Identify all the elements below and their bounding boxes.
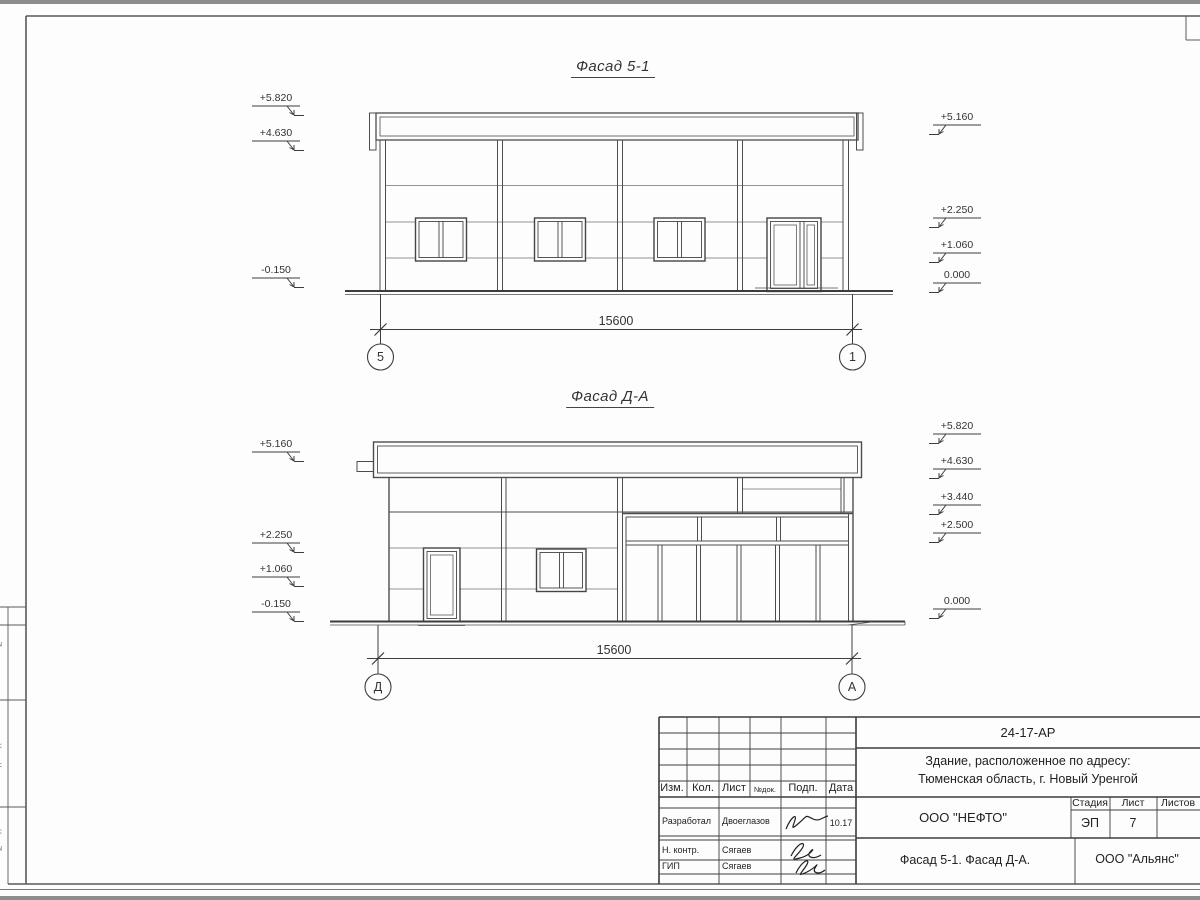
sheet-number: 7: [1130, 816, 1137, 830]
elevation-label: +5.820: [926, 420, 988, 432]
designer-org: ООО "НЕФТО": [919, 810, 1007, 825]
signature-path: [786, 816, 828, 874]
signer-date: 10.17: [830, 818, 853, 828]
dimension-label: 15600: [597, 643, 632, 657]
facade2-window: [537, 549, 587, 592]
rev-col-list: Лист: [722, 782, 746, 794]
elevation-label: +5.820: [245, 92, 307, 104]
facade2-storefront: [623, 514, 854, 622]
signer-name: Сягаев: [722, 845, 751, 855]
facade1-door: [767, 218, 821, 292]
elevation-label: 0.000: [926, 595, 988, 607]
elevation-label: +4.630: [926, 455, 988, 467]
stage-value: ЭП: [1081, 816, 1099, 830]
signer-name: Двоеглазов: [722, 816, 770, 826]
margin-label: Подп. и дата: [0, 700, 6, 807]
elevation-label: +2.250: [245, 529, 307, 541]
project-title-line1: Здание, расположенное по адресу:: [925, 754, 1130, 768]
axis-bubble-label: 1: [840, 350, 866, 364]
facade1-window: [416, 218, 467, 261]
sheet-name: Фасад 5-1. Фасад Д-А.: [900, 853, 1030, 867]
axis-bubble-label: Д: [365, 680, 391, 694]
signer-role: Н. контр.: [662, 845, 699, 855]
elevation-label: +1.060: [926, 239, 988, 251]
facade1-drawing: [252, 106, 981, 370]
client-org: ООО "Альянс": [1095, 852, 1179, 866]
rev-col-ndok: №док.: [754, 785, 776, 794]
facade1-dimension: [368, 294, 866, 370]
signer-role: ГИП: [662, 861, 680, 871]
elevation-label: -0.150: [245, 264, 307, 276]
rev-col-izm: Изм.: [660, 782, 684, 794]
elevation-label: +5.160: [926, 111, 988, 123]
facade2-title: Фасад Д-А: [566, 388, 654, 408]
sheet-label: Лист: [1122, 797, 1145, 809]
elevation-label: +2.250: [926, 204, 988, 216]
elevation-label: +2.500: [926, 519, 988, 531]
axis-bubble-label: 5: [368, 350, 394, 364]
signer-role: Разработал: [662, 816, 711, 826]
margin-label: Взам. инв. №: [0, 625, 6, 700]
facade1-window: [654, 218, 705, 261]
signer-name: Сягаев: [722, 861, 751, 871]
margin-label: Инв. № подл.: [0, 807, 6, 884]
stage-label: Стадия: [1072, 797, 1108, 809]
axis-bubble-label: А: [839, 680, 865, 694]
elevation-label: +1.060: [245, 563, 307, 575]
elevation-label: +5.160: [245, 438, 307, 450]
facade1-window: [535, 218, 586, 261]
elevation-label: -0.150: [245, 598, 307, 610]
elevation-label: 0.000: [926, 269, 988, 281]
elevation-label: +3.440: [926, 491, 988, 503]
rev-col-kol: Кол.: [692, 782, 714, 794]
doc-number: 24-17-АР: [1001, 725, 1056, 740]
drawing-sheet: Фасад 5-1 Фасад Д-А +5.820 +4.630 -0.150…: [0, 0, 1200, 900]
facade2-drawing: [252, 434, 981, 700]
sheets-label: Листов: [1161, 797, 1195, 809]
facade1-title: Фасад 5-1: [571, 58, 655, 78]
elevation-label: +4.630: [245, 127, 307, 139]
facade2-door: [424, 548, 461, 622]
dimension-label: 15600: [599, 314, 634, 328]
rev-col-podp: Подп.: [788, 782, 817, 794]
rev-col-data: Дата: [829, 782, 853, 794]
project-title-line2: Тюменская область, г. Новый Уренгой: [918, 772, 1138, 786]
facade2-dimension: [365, 625, 865, 700]
